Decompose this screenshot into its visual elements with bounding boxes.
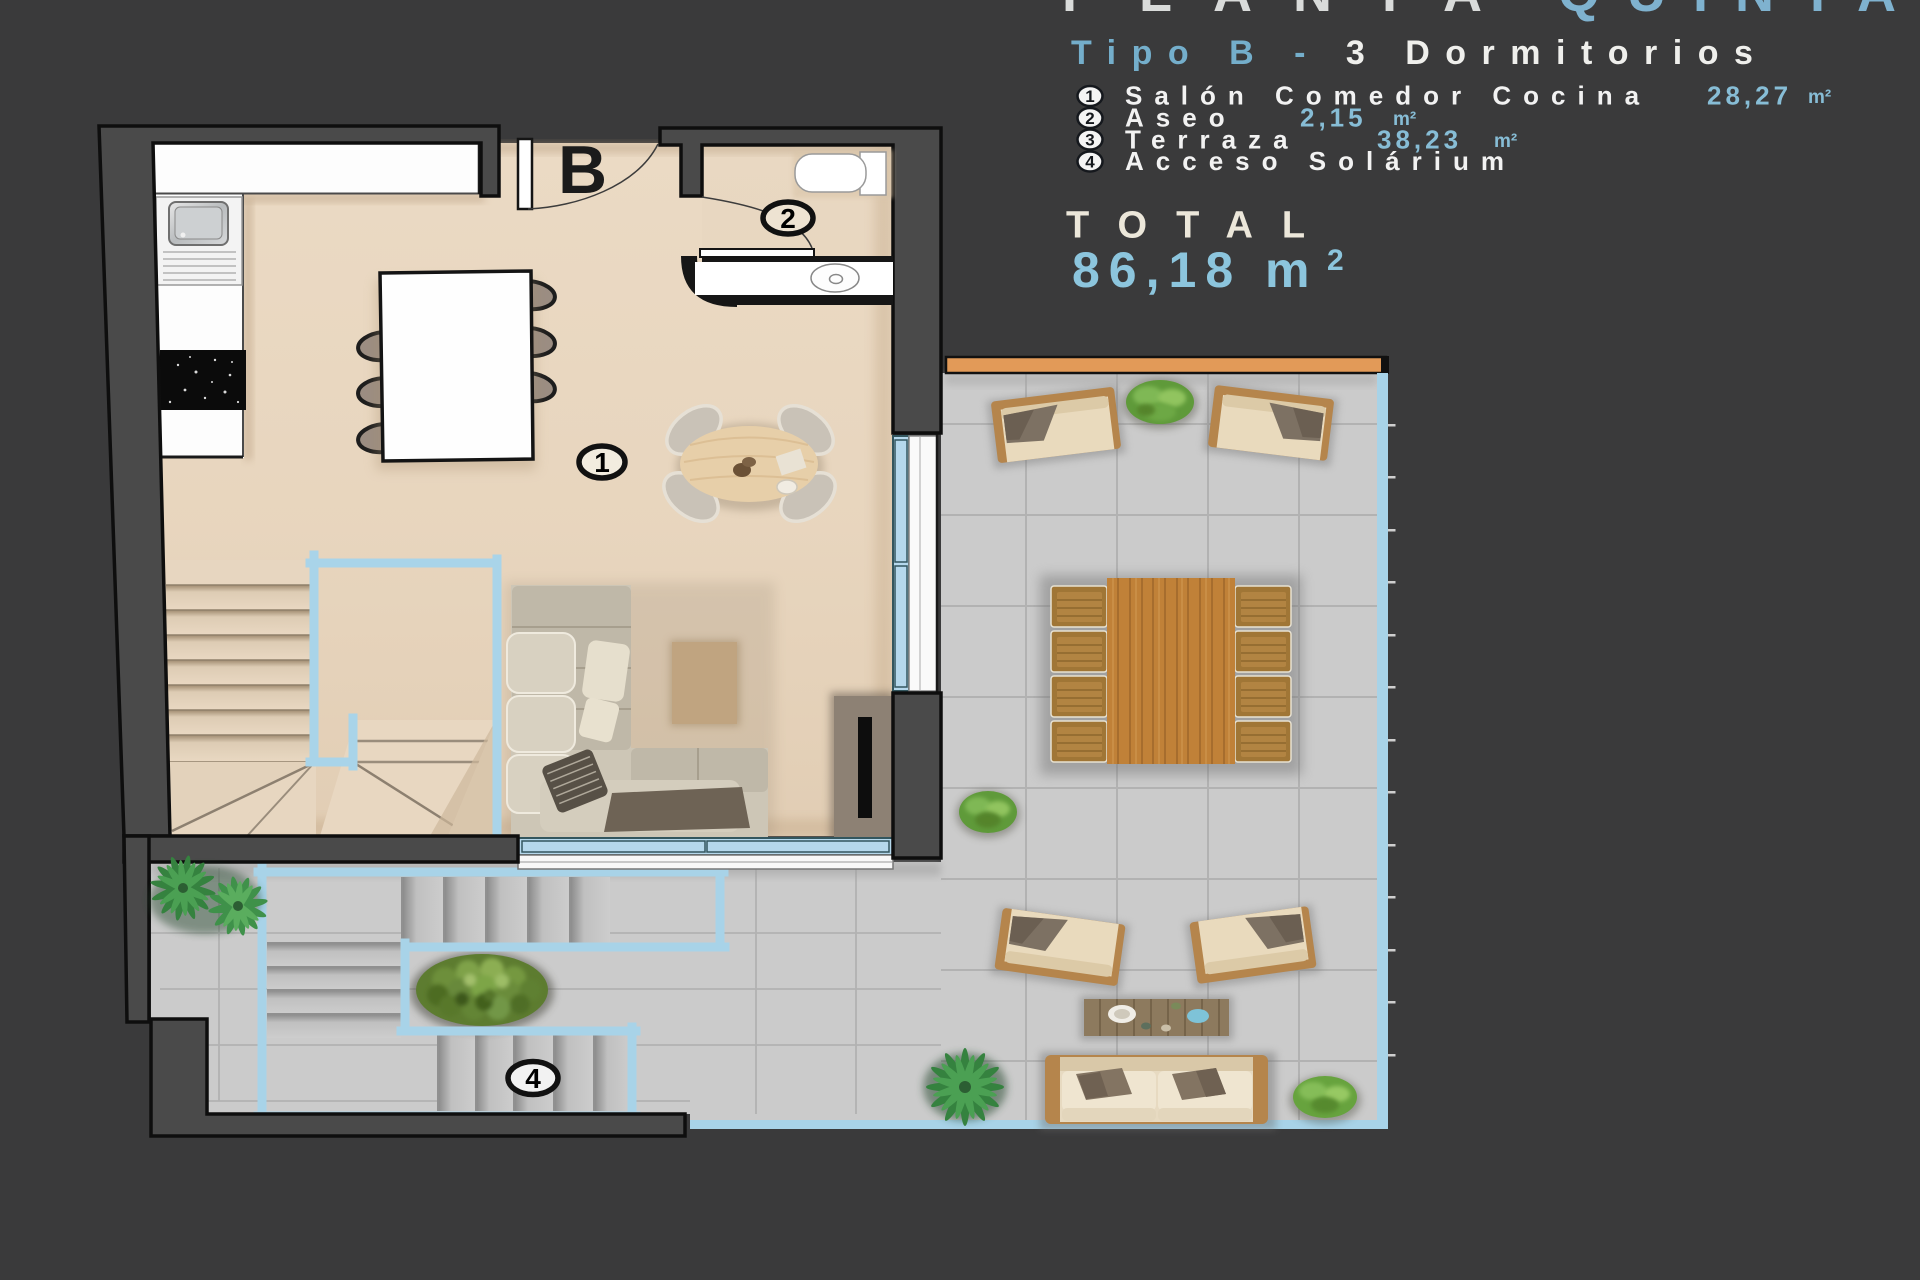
svg-text:4: 4: [1085, 153, 1095, 172]
svg-text:1: 1: [594, 447, 610, 478]
svg-text:3: 3: [1085, 131, 1094, 150]
svg-text:38,23: 38,23: [1377, 125, 1462, 155]
svg-text:TOTAL: TOTAL: [1066, 205, 1334, 247]
svg-text:B: B: [558, 132, 607, 208]
svg-text:28,27: 28,27: [1707, 81, 1792, 111]
svg-text:m²: m²: [1808, 87, 1831, 108]
svg-text:QUINTA: QUINTA: [1558, 0, 1920, 23]
svg-text:PLANTA: PLANTA: [1062, 0, 1523, 23]
svg-text:2: 2: [1327, 244, 1344, 277]
svg-text:Tipo B - 3 Dormitorios: Tipo B - 3 Dormitorios: [1071, 34, 1768, 72]
svg-text:4: 4: [525, 1063, 541, 1094]
svg-text:m²: m²: [1494, 131, 1517, 152]
svg-text:m²: m²: [1393, 109, 1416, 130]
svg-text:86,18 m: 86,18 m: [1072, 242, 1318, 298]
svg-text:1: 1: [1085, 87, 1094, 106]
svg-text:2: 2: [780, 203, 796, 234]
svg-text:2,15: 2,15: [1300, 103, 1367, 133]
svg-text:2: 2: [1085, 109, 1094, 128]
